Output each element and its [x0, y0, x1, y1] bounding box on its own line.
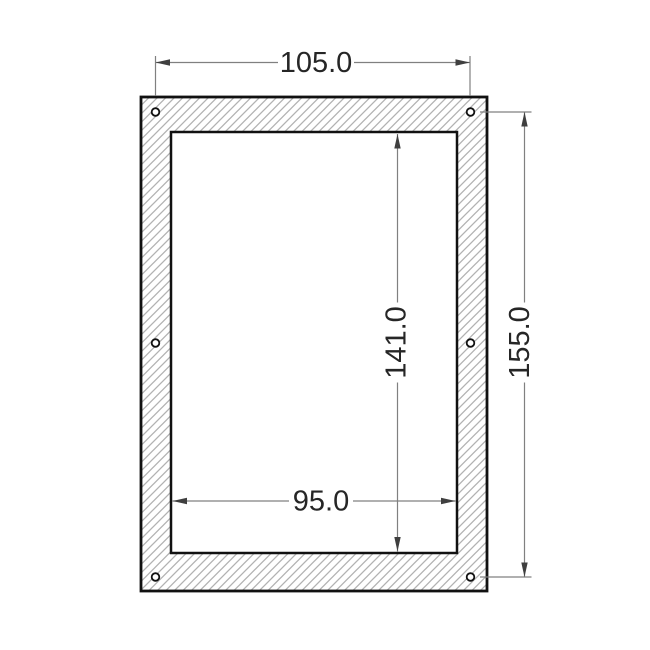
arrowhead-up — [521, 112, 527, 127]
mounting-hole-top-right — [467, 108, 475, 116]
mounting-hole-top-left — [152, 108, 160, 116]
arrowhead-right — [456, 59, 471, 65]
dimension-label: 105.0 — [280, 47, 353, 79]
dimension-hole-span-horizontal: 105.0 — [156, 47, 471, 96]
frame-dimension-drawing: 105.0 155.0 141.0 — [0, 0, 650, 650]
mounting-hole-mid-right — [467, 339, 475, 347]
technical-drawing-canvas: 105.0 155.0 141.0 — [0, 0, 650, 650]
arrowhead-left — [156, 59, 171, 65]
mounting-hole-bottom-left — [152, 573, 160, 581]
mounting-hole-mid-left — [152, 339, 160, 347]
dimension-label: 141.0 — [381, 306, 413, 379]
dimension-label: 95.0 — [293, 486, 349, 518]
arrowhead-down — [521, 563, 527, 578]
dimension-label: 155.0 — [504, 306, 536, 379]
mounting-hole-bottom-right — [467, 573, 475, 581]
